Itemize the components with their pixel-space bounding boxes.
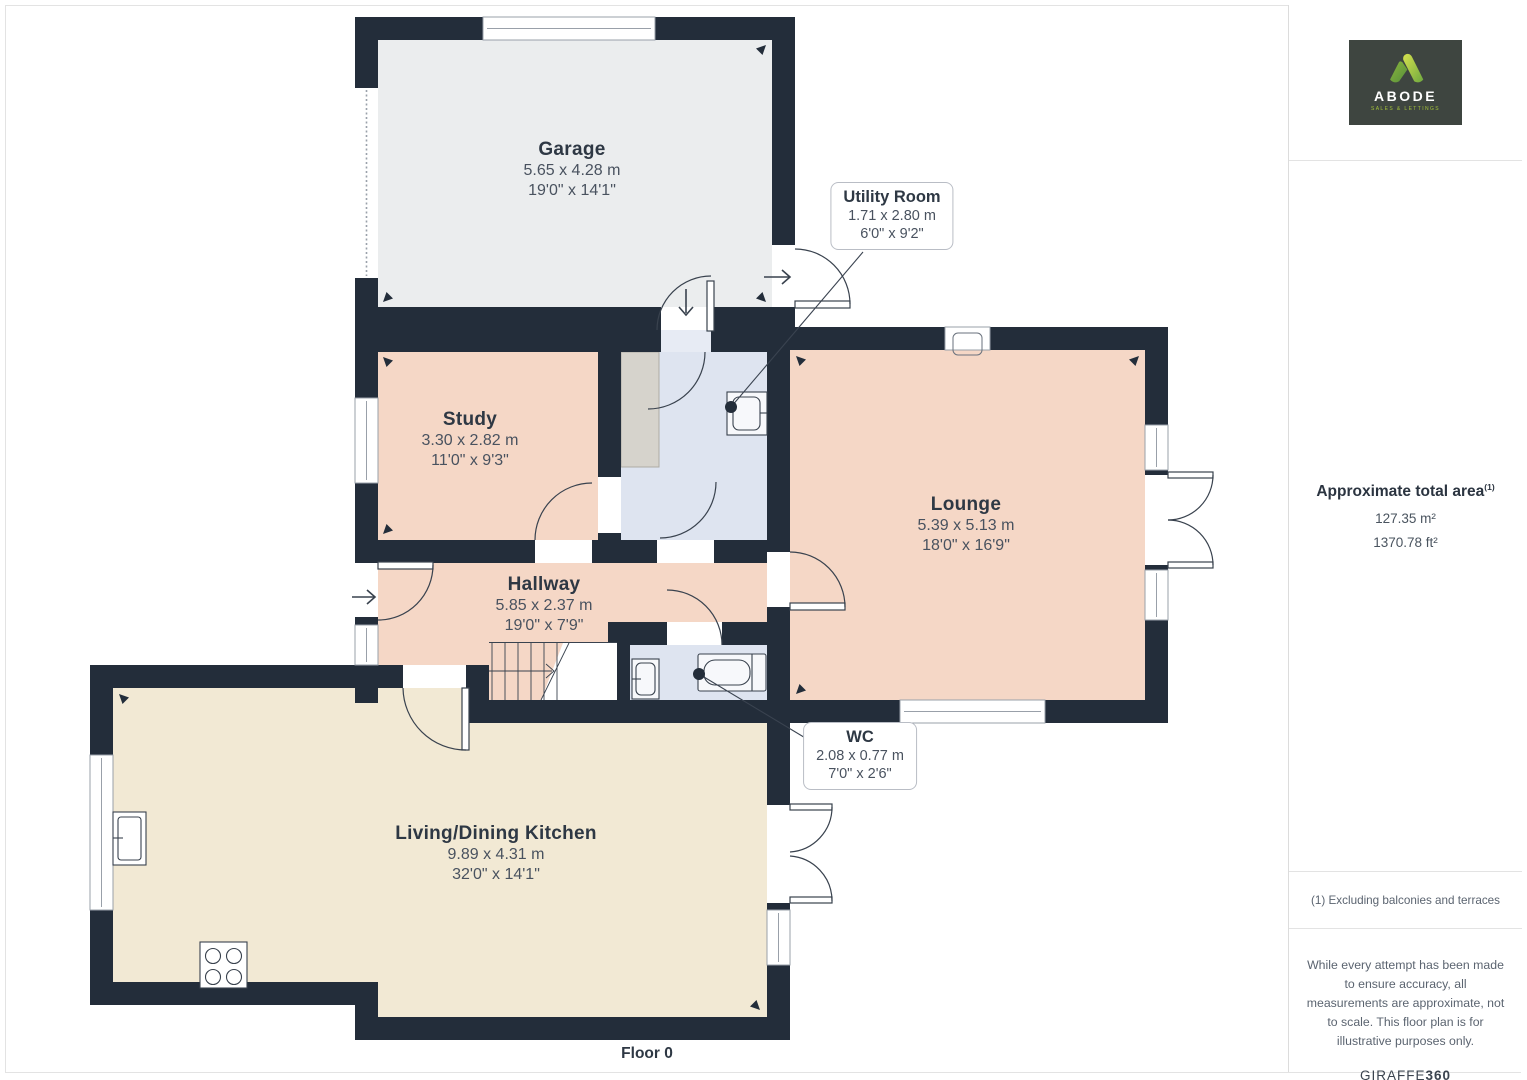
total-area-section: Approximate total area(1) 127.35 m² 1370…	[1289, 161, 1522, 872]
total-area-title: Approximate total area(1)	[1316, 482, 1494, 501]
credit-prefix: GIRAFFE	[1360, 1068, 1426, 1080]
abode-logo-icon	[1386, 53, 1426, 85]
total-area-title-text: Approximate total area	[1316, 484, 1484, 501]
room-dim-metric: 9.89 x 4.31 m	[395, 845, 597, 865]
agency-logo: ABODE SALES & LETTINGS	[1349, 40, 1462, 125]
credit-suffix: 360	[1425, 1068, 1451, 1080]
exclusion-note: (1) Excluding balconies and terraces	[1289, 872, 1522, 929]
room-dim-imperial: 11'0" x 9'3"	[422, 451, 519, 471]
room-name: Garage	[524, 139, 621, 161]
room-dim-metric: 3.30 x 2.82 m	[422, 431, 519, 451]
room-label-study: Study 3.30 x 2.82 m 11'0" x 9'3"	[422, 409, 519, 470]
logo-section: ABODE SALES & LETTINGS	[1289, 5, 1522, 161]
room-name: Living/Dining Kitchen	[395, 823, 597, 845]
logo-tagline-text: SALES & LETTINGS	[1371, 106, 1440, 112]
room-name: Lounge	[918, 494, 1015, 516]
logo-brand-text: ABODE	[1374, 88, 1437, 104]
sidebar: ABODE SALES & LETTINGS Approximate total…	[1288, 5, 1522, 1072]
room-label-garage: Garage 5.65 x 4.28 m 19'0" x 14'1"	[524, 139, 621, 200]
room-dim-imperial: 18'0" x 16'9"	[918, 536, 1015, 556]
room-label-hallway: Hallway 5.85 x 2.37 m 19'0" x 7'9"	[496, 574, 593, 635]
room-name: Hallway	[496, 574, 593, 596]
room-label-lounge: Lounge 5.39 x 5.13 m 18'0" x 16'9"	[918, 494, 1015, 555]
total-area-m2: 127.35 m²	[1375, 511, 1436, 526]
room-dim-metric: 2.08 x 0.77 m	[816, 747, 904, 765]
room-dim-metric: 5.65 x 4.28 m	[524, 161, 621, 181]
room-dim-metric: 1.71 x 2.80 m	[843, 207, 940, 225]
total-area-ft2: 1370.78 ft²	[1373, 535, 1438, 550]
total-area-superscript: (1)	[1484, 482, 1494, 492]
room-name: Utility Room	[843, 188, 940, 207]
room-name: WC	[816, 728, 904, 747]
disclaimer-text: While every attempt has been made to ens…	[1289, 929, 1522, 1051]
room-label-kitchen: Living/Dining Kitchen 9.89 x 4.31 m 32'0…	[395, 823, 597, 884]
room-name: Study	[422, 409, 519, 431]
room-dim-imperial: 32'0" x 14'1"	[395, 865, 597, 885]
callout-utility-room: Utility Room 1.71 x 2.80 m 6'0" x 9'2"	[830, 182, 953, 250]
room-dim-imperial: 7'0" x 2'6"	[816, 765, 904, 783]
floorplan-page: Garage 5.65 x 4.28 m 19'0" x 14'1" Study…	[0, 0, 1527, 1080]
room-dim-metric: 5.85 x 2.37 m	[496, 596, 593, 616]
disclaimer-section: While every attempt has been made to ens…	[1289, 929, 1522, 1080]
floorplan-svg	[0, 0, 1288, 1080]
room-dim-imperial: 6'0" x 9'2"	[843, 225, 940, 243]
floor-label: Floor 0	[621, 1045, 673, 1063]
callout-wc: WC 2.08 x 0.77 m 7'0" x 2'6"	[803, 722, 917, 790]
room-dim-imperial: 19'0" x 14'1"	[524, 181, 621, 201]
giraffe360-credit: GIRAFFE360	[1289, 1068, 1522, 1080]
room-dim-imperial: 19'0" x 7'9"	[496, 616, 593, 636]
room-dim-metric: 5.39 x 5.13 m	[918, 516, 1015, 536]
